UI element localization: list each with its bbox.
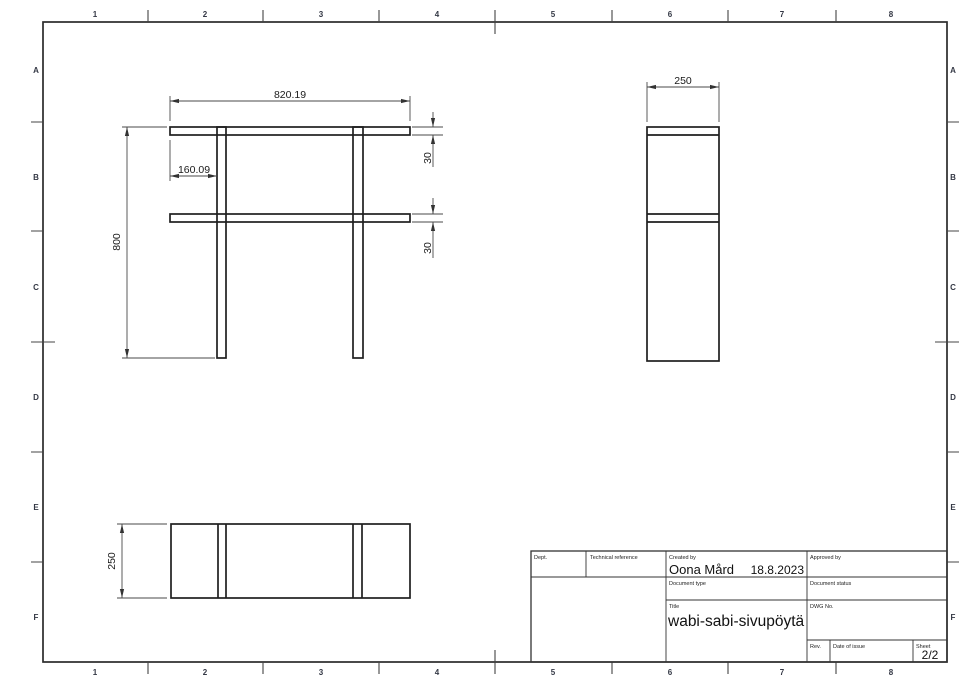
arrowhead <box>125 127 129 136</box>
frame-ticks-bottom <box>148 662 836 674</box>
arrowhead <box>431 135 435 144</box>
frame-ticks-top <box>148 10 836 22</box>
grid-row-label: D <box>33 393 39 402</box>
created-by-value: Oona Mård <box>669 562 734 577</box>
grid-col-label: 8 <box>889 10 894 19</box>
dim-plan-depth: 250 <box>106 524 167 598</box>
dim-shelf-thickness-text: 30 <box>422 242 434 254</box>
dim-side-depth-text: 250 <box>674 75 692 87</box>
grid-col-label: 3 <box>319 668 324 677</box>
grid-col-label: 5 <box>551 10 556 19</box>
top-view-outline <box>171 524 410 598</box>
dim-top-thickness-text: 30 <box>422 152 434 164</box>
date-of-issue-label: Date of issue <box>833 644 865 650</box>
grid-row-label: A <box>950 66 956 75</box>
dim-side-depth: 250 <box>647 75 719 122</box>
grid-row-label: C <box>950 283 956 292</box>
dim-shelf-thickness: 30 <box>412 198 443 258</box>
arrowhead <box>120 524 124 533</box>
grid-row-label: F <box>951 613 956 622</box>
grid-col-label: 6 <box>668 668 673 677</box>
grid-col-label: 1 <box>93 668 98 677</box>
title-block-border <box>531 551 947 662</box>
right-leg-outline <box>353 127 363 358</box>
arrowhead <box>431 222 435 231</box>
grid-col-label: 2 <box>203 10 208 19</box>
side-view-outline <box>647 127 719 361</box>
grid-col-label: 7 <box>780 10 785 19</box>
left-leg-outline <box>217 127 226 358</box>
dim-top-thickness: 30 <box>412 112 443 167</box>
drawing-title-value: wabi-sabi-sivupöytä <box>667 613 804 630</box>
arrowhead <box>647 85 656 89</box>
grid-row-label: A <box>33 66 39 75</box>
grid-row-label: E <box>950 503 956 512</box>
grid-col-label: 4 <box>435 10 440 19</box>
dim-plan-depth-text: 250 <box>106 552 118 570</box>
arrowhead <box>401 99 410 103</box>
grid-row-label: F <box>34 613 39 622</box>
drawing-sheet: 1 2 3 4 5 6 7 8 1 2 3 4 5 6 7 8 A B C D … <box>0 0 968 683</box>
side-view <box>647 127 719 361</box>
grid-row-label: E <box>33 503 39 512</box>
arrowhead <box>170 99 179 103</box>
dimensions: 820.19 160.09 800 30 30 <box>106 75 719 598</box>
grid-col-label: 1 <box>93 10 98 19</box>
dim-leg-offset: 160.09 <box>170 140 217 181</box>
approved-by-label: Approved by <box>810 555 841 561</box>
grid-row-label: C <box>33 283 39 292</box>
shelf-outline <box>170 214 410 222</box>
grid-row-label: D <box>950 393 956 402</box>
arrowhead <box>710 85 719 89</box>
title-label: Title <box>669 604 679 610</box>
title-block-gridlines <box>531 551 947 662</box>
grid-row-label: B <box>950 173 956 182</box>
top-view-leg-edges <box>218 524 362 598</box>
dim-leg-offset-text: 160.09 <box>178 164 210 176</box>
dim-front-width-text: 820.19 <box>274 89 306 101</box>
document-status-label: Document status <box>810 581 852 587</box>
arrowhead <box>431 118 435 127</box>
arrowhead <box>125 349 129 358</box>
created-date-value: 18.8.2023 <box>751 563 805 577</box>
front-view <box>170 127 410 358</box>
top-view <box>171 524 410 598</box>
dim-front-width: 820.19 <box>170 89 410 121</box>
frame-border <box>43 22 947 662</box>
sheet-value: 2/2 <box>922 648 939 662</box>
grid-col-label: 4 <box>435 668 440 677</box>
document-type-label: Document type <box>669 581 706 587</box>
tabletop-outline <box>170 127 410 135</box>
grid-col-label: 8 <box>889 668 894 677</box>
grid-col-label: 6 <box>668 10 673 19</box>
grid-col-label: 5 <box>551 668 556 677</box>
dim-front-height-text: 800 <box>111 233 123 251</box>
dim-front-height: 800 <box>111 127 215 358</box>
grid-col-label: 2 <box>203 668 208 677</box>
title-block: Dept. Technical reference Created by App… <box>531 551 947 662</box>
side-view-edges <box>647 135 719 222</box>
created-by-label: Created by <box>669 555 696 561</box>
rev-label: Rev. <box>810 644 821 650</box>
arrowhead <box>120 589 124 598</box>
technical-reference-label: Technical reference <box>590 555 638 561</box>
dept-label: Dept. <box>534 555 548 561</box>
dwg-no-label: DWG No. <box>810 604 834 610</box>
grid-row-label: B <box>33 173 39 182</box>
page: { "drawing": { "grid": { "cols": ["1", "… <box>0 0 968 683</box>
grid-col-label: 3 <box>319 10 324 19</box>
arrowhead <box>431 205 435 214</box>
grid-col-label: 7 <box>780 668 785 677</box>
